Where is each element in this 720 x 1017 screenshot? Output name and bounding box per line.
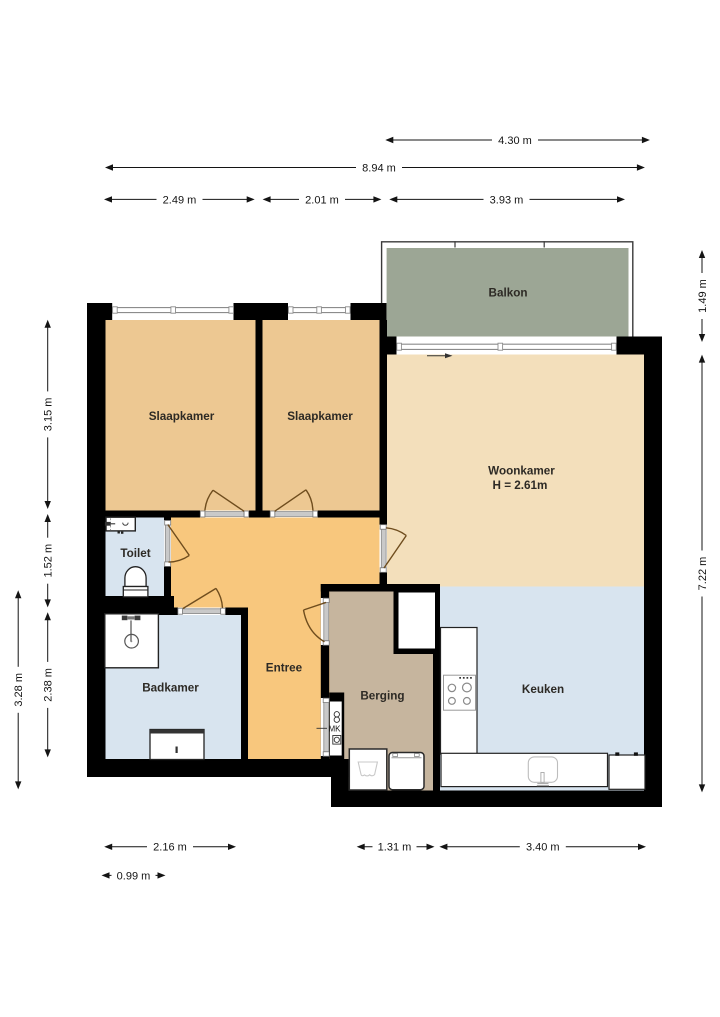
svg-text:0.99 m: 0.99 m	[117, 870, 151, 882]
svg-text:3.93 m: 3.93 m	[490, 194, 524, 206]
svg-text:Slaapkamer: Slaapkamer	[149, 410, 215, 423]
svg-text:1.49 m: 1.49 m	[697, 279, 709, 313]
svg-text:Entree: Entree	[266, 662, 303, 675]
svg-text:8.94 m: 8.94 m	[362, 162, 396, 174]
svg-text:3.28 m: 3.28 m	[13, 673, 25, 707]
svg-text:Badkamer: Badkamer	[142, 681, 199, 694]
svg-text:Balkon: Balkon	[489, 287, 528, 300]
svg-text:2.16 m: 2.16 m	[153, 842, 187, 854]
svg-text:1.31 m: 1.31 m	[378, 842, 412, 854]
svg-text:1.52 m: 1.52 m	[43, 544, 55, 578]
svg-text:Berging: Berging	[360, 689, 404, 702]
svg-text:4.30 m: 4.30 m	[498, 135, 532, 147]
svg-text:3.40 m: 3.40 m	[526, 842, 560, 854]
svg-text:Woonkamer: Woonkamer	[488, 465, 555, 478]
svg-text:3.15 m: 3.15 m	[43, 398, 55, 432]
svg-text:2.49 m: 2.49 m	[163, 194, 197, 206]
svg-text:Toilet: Toilet	[120, 547, 150, 560]
svg-text:Keuken: Keuken	[522, 683, 564, 696]
svg-text:Slaapkamer: Slaapkamer	[287, 410, 353, 423]
svg-text:2.01 m: 2.01 m	[305, 194, 339, 206]
svg-text:2.38 m: 2.38 m	[43, 668, 55, 702]
svg-text:H = 2.61m: H = 2.61m	[493, 479, 548, 492]
svg-text:7.22 m: 7.22 m	[697, 557, 709, 591]
svg-text:MK: MK	[329, 725, 342, 734]
